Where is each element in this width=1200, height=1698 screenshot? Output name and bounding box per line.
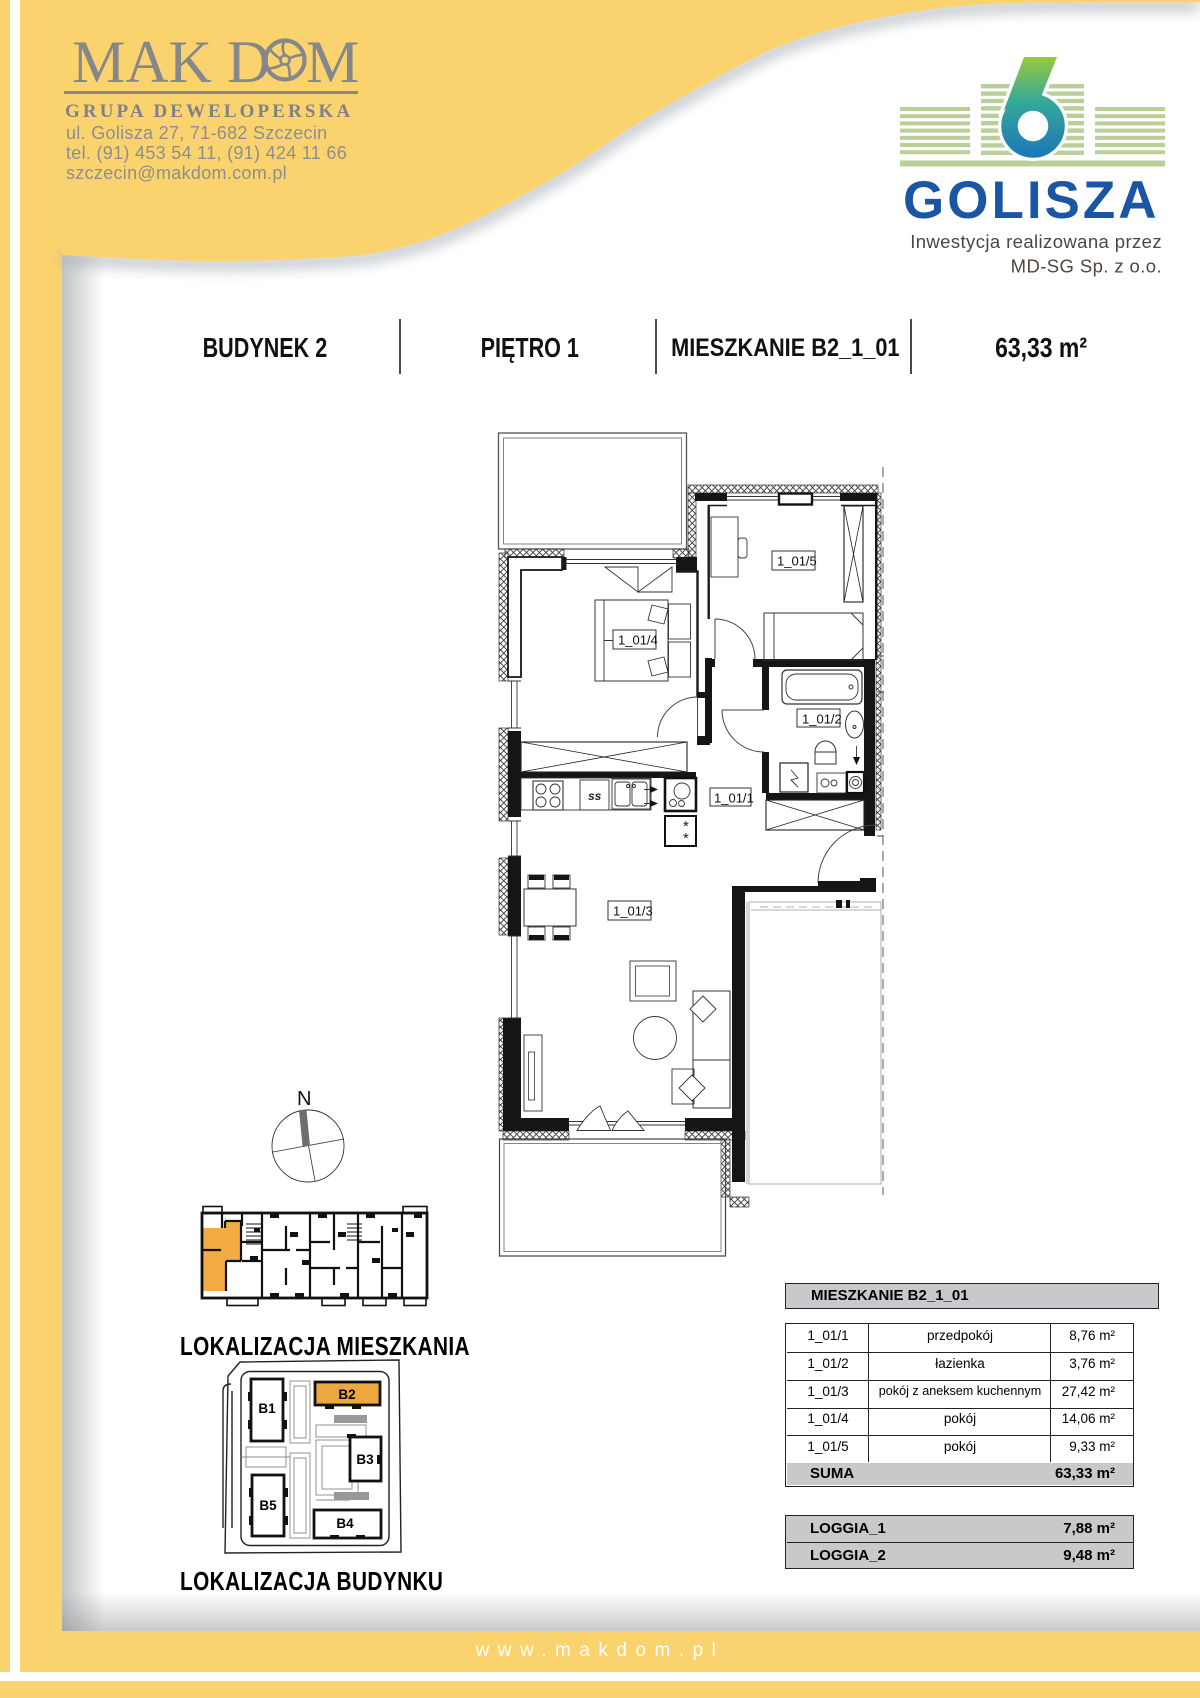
svg-text:ss: ss [588, 789, 602, 803]
svg-text:*: * [683, 830, 689, 847]
svg-text:tel. (91) 453 54 11, (91) 424: tel. (91) 453 54 11, (91) 424 11 66 [66, 143, 347, 163]
svg-text:N: N [297, 1088, 311, 1110]
svg-text:ul. Golisza 27, 71-682 Szczeci: ul. Golisza 27, 71-682 Szczecin [66, 123, 327, 143]
svg-text:szczecin@makdom.com.pl: szczecin@makdom.com.pl [66, 163, 287, 183]
svg-text:B4: B4 [336, 1516, 354, 1531]
svg-text:Inwestycja realizowana przez: Inwestycja realizowana przez [910, 231, 1162, 252]
svg-text:MAK D: MAK D [72, 29, 270, 95]
svg-text:1_01/5: 1_01/5 [777, 554, 817, 569]
svg-text:B3: B3 [356, 1452, 374, 1467]
svg-text:B2: B2 [338, 1387, 355, 1402]
svg-text:B1: B1 [258, 1401, 276, 1416]
svg-text:1_01/2: 1_01/2 [802, 712, 842, 727]
svg-text:MD-SG Sp. z o.o.: MD-SG Sp. z o.o. [1011, 256, 1162, 277]
svg-text:1_01/3: 1_01/3 [613, 904, 653, 919]
svg-text:GOLISZA: GOLISZA [903, 171, 1160, 230]
svg-text:GRUPA DEWELOPERSKA: GRUPA DEWELOPERSKA [65, 101, 353, 122]
svg-text:B5: B5 [259, 1498, 277, 1513]
svg-text:M: M [306, 29, 359, 95]
svg-text:1_01/4: 1_01/4 [618, 633, 658, 648]
svg-text:1_01/1: 1_01/1 [714, 791, 754, 806]
